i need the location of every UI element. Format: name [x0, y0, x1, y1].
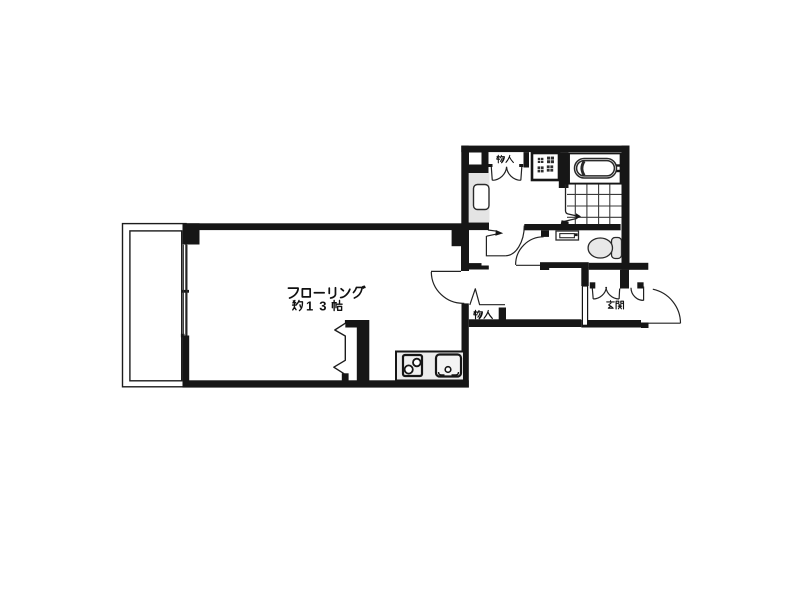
svg-text:13: 13 [306, 298, 332, 313]
